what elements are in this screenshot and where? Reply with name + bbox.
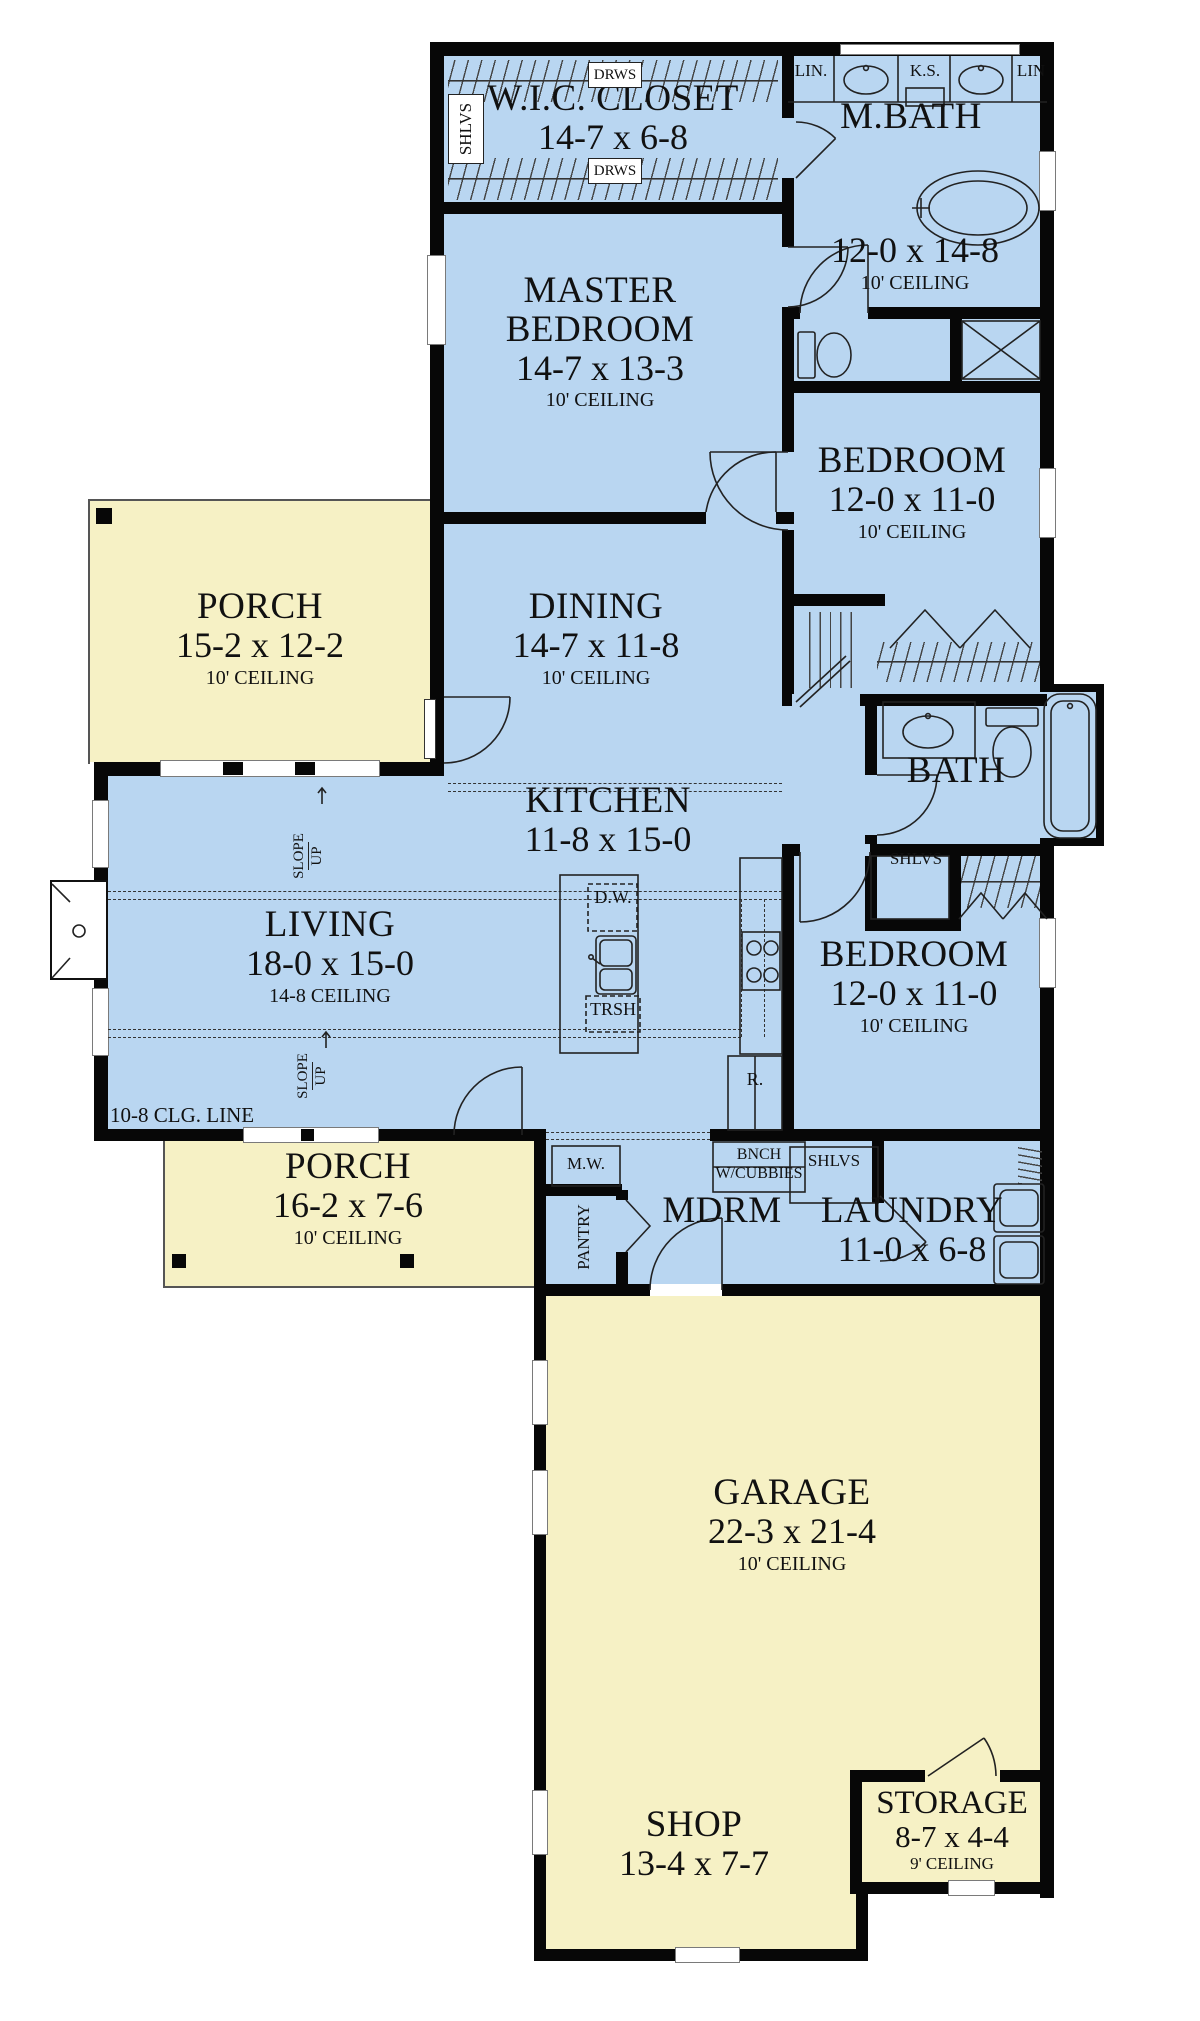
room-dims: 14-7 x 6-8 [453, 119, 773, 157]
room-label-bedroom1: BEDROOM 12-0 x 11-0 10' CEILING [762, 442, 1062, 543]
room-label-bedroom2: BEDROOM 12-0 x 11-0 10' CEILING [764, 936, 1064, 1037]
room-name: BATH [876, 752, 1036, 791]
ceiling-line-annotation: 10-8 CLG. LINE [110, 1104, 380, 1127]
pantry-label: PANTRY [573, 1197, 595, 1277]
trash-label: TRSH [584, 1000, 642, 1020]
room-ceiling: 10' CEILING [436, 668, 756, 689]
room-dims: 14-7 x 11-8 [436, 627, 756, 665]
room-name: M.BATH [786, 98, 1036, 137]
room-ceiling: 10' CEILING [764, 1016, 1064, 1037]
room-label-dining: DINING 14-7 x 11-8 10' CEILING [436, 588, 756, 689]
shlvs-text: SHLVS [457, 103, 476, 155]
mw-text: M.W. [567, 1154, 605, 1173]
knee-space-label: K.S. [900, 62, 950, 81]
room-dims: 12-0 x 11-0 [762, 481, 1062, 519]
room-dims: 11-0 x 6-8 [772, 1231, 1052, 1269]
shlvs-text: SHLVS [890, 849, 942, 868]
room-ceiling: 9' CEILING [842, 1855, 1062, 1873]
room-dims: 14-7 x 13-3 [460, 350, 740, 388]
room-label-wic: W.I.C. CLOSET 14-7 x 6-8 [453, 80, 773, 157]
room-label-mbath-dims: 12-0 x 14-8 10' CEILING [790, 232, 1040, 294]
up-text: UP [308, 842, 326, 869]
drawers-label: DRWS [588, 62, 642, 88]
room-ceiling: 10' CEILING [762, 522, 1062, 543]
room-label-shop: SHOP 13-4 x 7-7 [534, 1806, 854, 1883]
shlvs-text: SHLVS [808, 1151, 860, 1170]
room-name: GARAGE [612, 1474, 972, 1513]
room-name: STORAGE [842, 1786, 1062, 1821]
room-name: BEDROOM [762, 442, 1062, 481]
room-dims: 18-0 x 15-0 [160, 945, 500, 983]
dishwasher-label: D.W. [588, 888, 638, 908]
room-dims: 8-7 x 4-4 [842, 1821, 1062, 1854]
room-name: PORCH [178, 1148, 518, 1187]
up-text: UP [312, 1062, 330, 1089]
room-name: SHOP [534, 1806, 854, 1845]
room-ceiling: 10' CEILING [100, 668, 420, 689]
drws-text: DRWS [594, 163, 637, 179]
room-label-master: MASTER BEDROOM 14-7 x 13-3 10' CEILING [460, 272, 740, 411]
room-name: KITCHEN [448, 782, 768, 821]
room-label-garage: GARAGE 22-3 x 21-4 10' CEILING [612, 1474, 972, 1575]
ks-text: K.S. [910, 61, 940, 80]
room-label-laundry: LAUNDRY 11-0 x 6-8 [772, 1192, 1052, 1269]
lin-text: LIN. [795, 61, 828, 80]
room-dims: 12-0 x 11-0 [764, 975, 1064, 1013]
microwave-label: M.W. [554, 1155, 618, 1174]
cubbies-text: W/CUBBIES [715, 1165, 802, 1182]
room-ceiling: 10' CEILING [460, 390, 740, 411]
room-name: PORCH [100, 588, 420, 627]
refrigerator-label: R. [735, 1070, 775, 1090]
bnch-text: BNCH [737, 1146, 781, 1163]
slope-text: SLOPE [295, 1053, 312, 1099]
room-ceiling: 10' CEILING [612, 1554, 972, 1575]
hall-bath-fixtures [871, 694, 1096, 919]
room-dims: 15-2 x 12-2 [100, 627, 420, 665]
drawers-label: DRWS [588, 158, 642, 184]
floor-plan: W.I.C. CLOSET 14-7 x 6-8 M.BATH 12-0 x 1… [0, 0, 1200, 2021]
room-label-porch2: PORCH 16-2 x 7-6 10' CEILING [178, 1148, 518, 1249]
room-ceiling: 10' CEILING [178, 1228, 518, 1249]
shelves-label-laundry: SHLVS [792, 1152, 876, 1171]
room-label-living: LIVING 18-0 x 15-0 14-8 CEILING [160, 906, 500, 1007]
room-name: MASTER BEDROOM [460, 272, 740, 350]
room-label-mbath: M.BATH [786, 98, 1036, 137]
room-dims: 22-3 x 21-4 [612, 1513, 972, 1551]
clg-line-text: 10-8 CLG. LINE [110, 1103, 254, 1127]
slope-text: SLOPE [291, 833, 308, 879]
room-name: DINING [436, 588, 756, 627]
room-label-bath: BATH [876, 752, 1036, 791]
slope-up-annotation: SLOPE UP [286, 811, 330, 901]
pantry-text: PANTRY [575, 1204, 594, 1270]
room-dims: 12-0 x 14-8 [790, 232, 1040, 270]
room-label-kitchen: KITCHEN 11-8 x 15-0 [448, 782, 768, 859]
room-label-porch1: PORCH 15-2 x 12-2 10' CEILING [100, 588, 420, 689]
shelves-label-wic: SHLVS [455, 89, 477, 169]
room-dims: 13-4 x 7-7 [534, 1845, 854, 1883]
room-name: LAUNDRY [772, 1192, 1052, 1231]
room-name: LIVING [160, 906, 500, 945]
fridge-text: R. [747, 1069, 764, 1089]
room-label-storage: STORAGE 8-7 x 4-4 9' CEILING [842, 1786, 1062, 1873]
room-ceiling: 10' CEILING [790, 273, 1040, 294]
drws-text: DRWS [594, 67, 637, 83]
dw-text: D.W. [594, 887, 631, 907]
room-ceiling: 14-8 CEILING [160, 986, 500, 1007]
lin-text: LIN [1017, 61, 1045, 80]
room-dims: 11-8 x 15-0 [448, 821, 768, 859]
trsh-text: TRSH [590, 999, 636, 1019]
linen-label-right: LIN [1012, 62, 1050, 81]
linen-label-left: LIN. [788, 62, 834, 81]
fireplace-symbol [52, 884, 85, 978]
room-dims: 16-2 x 7-6 [178, 1187, 518, 1225]
shelves-label-hall: SHLVS [876, 850, 956, 869]
room-name: BEDROOM [764, 936, 1064, 975]
